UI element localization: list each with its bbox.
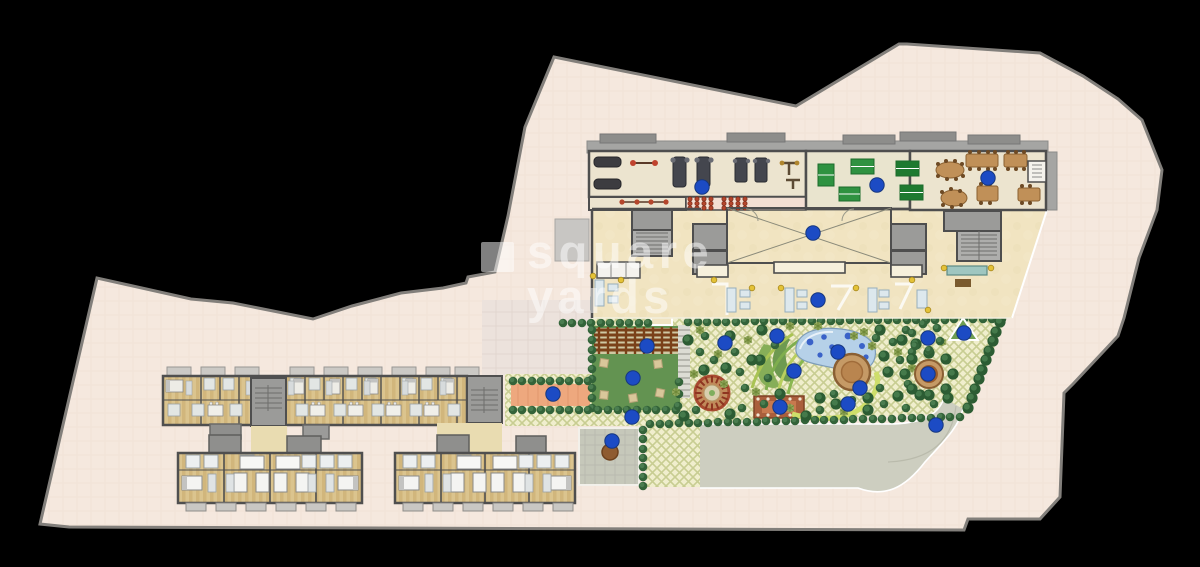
svg-text:yards: yards — [527, 270, 673, 323]
